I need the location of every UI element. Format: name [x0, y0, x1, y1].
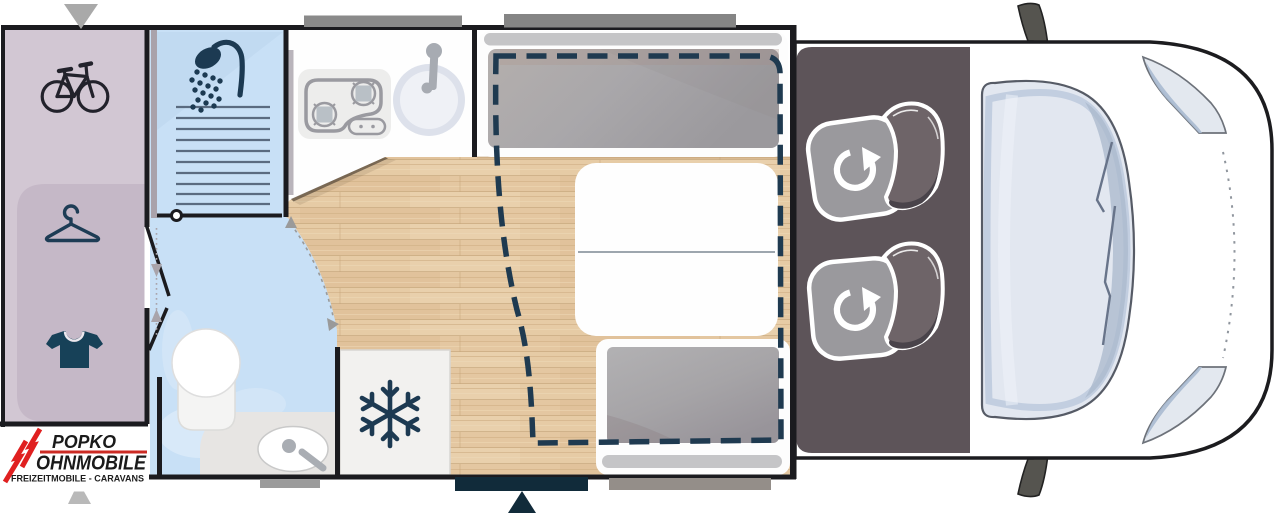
- svg-text:POPKO: POPKO: [52, 431, 117, 452]
- svg-text:FREIZEITMOBILE - CARAVANS: FREIZEITMOBILE - CARAVANS: [11, 474, 144, 484]
- svg-text:OHNMOBILE: OHNMOBILE: [36, 453, 147, 475]
